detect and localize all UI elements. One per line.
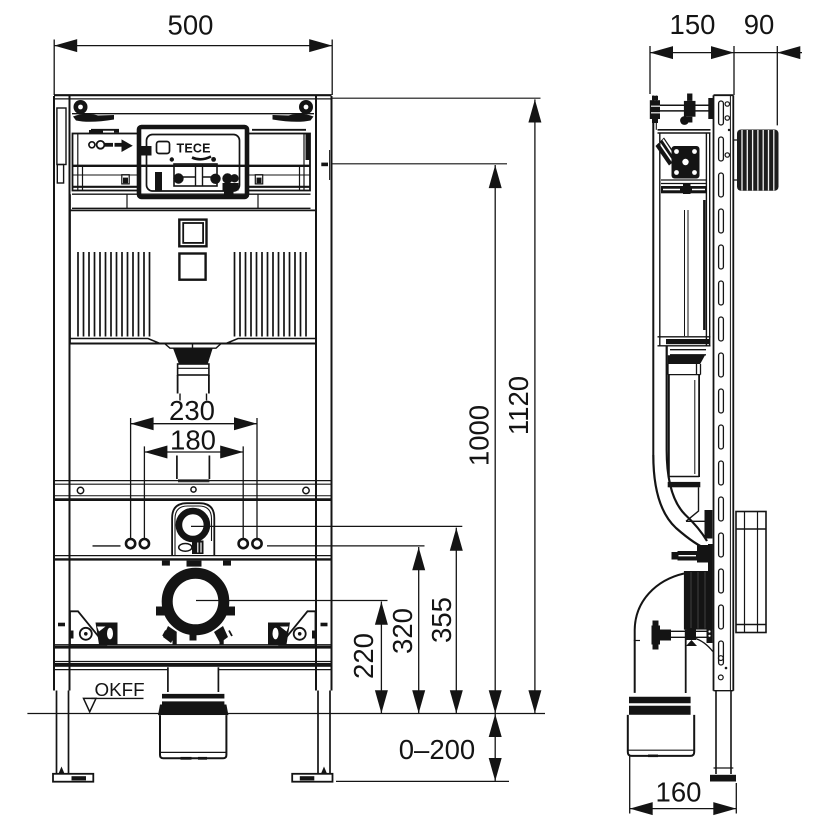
svg-text:230: 230: [169, 395, 215, 426]
svg-text:0–200: 0–200: [399, 734, 475, 765]
svg-text:90: 90: [744, 9, 775, 40]
svg-text:1000: 1000: [463, 405, 494, 466]
svg-text:160: 160: [656, 777, 702, 808]
svg-text:320: 320: [387, 608, 418, 654]
svg-text:TECE: TECE: [177, 142, 211, 156]
svg-text:1120: 1120: [503, 376, 534, 435]
svg-text:OKFF: OKFF: [95, 679, 145, 700]
svg-text:180: 180: [170, 425, 216, 456]
svg-text:220: 220: [348, 633, 379, 679]
svg-text:150: 150: [670, 9, 716, 40]
svg-text:500: 500: [168, 10, 214, 41]
svg-text:355: 355: [426, 597, 457, 643]
